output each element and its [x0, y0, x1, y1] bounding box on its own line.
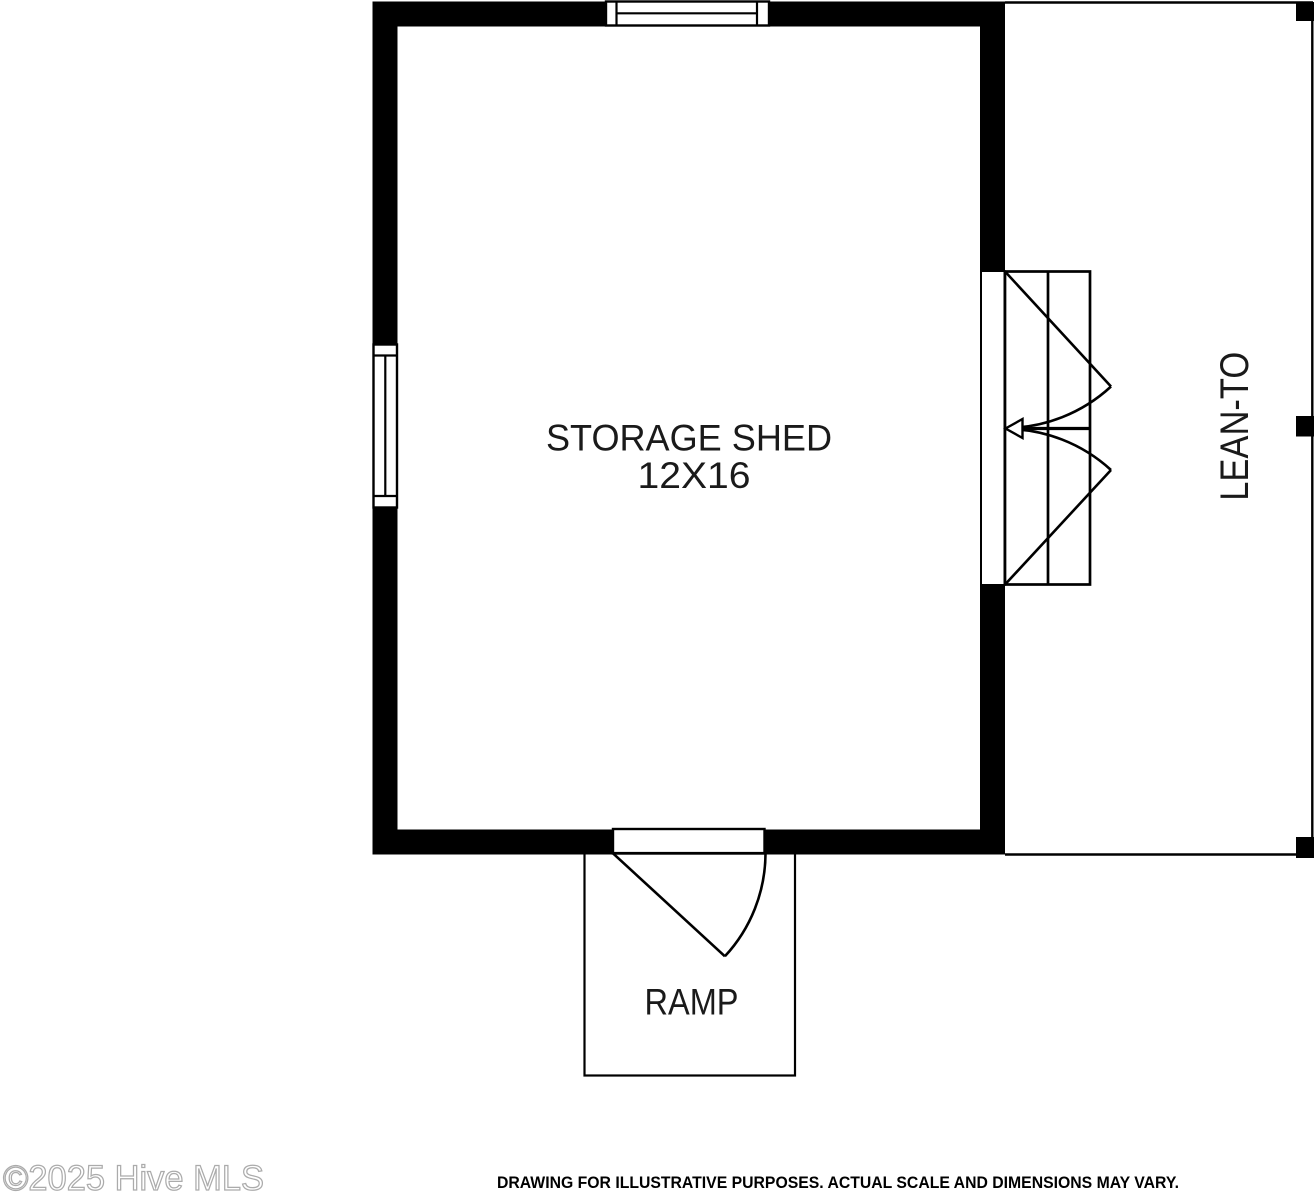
- svg-text:DRAWING FOR ILLUSTRATIVE PURPO: DRAWING FOR ILLUSTRATIVE PURPOSES. ACTUA…: [497, 1174, 1179, 1192]
- svg-text:LEAN-TO: LEAN-TO: [1213, 352, 1257, 501]
- svg-text:12X16: 12X16: [638, 455, 751, 496]
- svg-text:STORAGE SHED: STORAGE SHED: [546, 418, 832, 459]
- svg-text:©2025 Hive MLS: ©2025 Hive MLS: [3, 1159, 264, 1198]
- svg-text:RAMP: RAMP: [645, 982, 739, 1023]
